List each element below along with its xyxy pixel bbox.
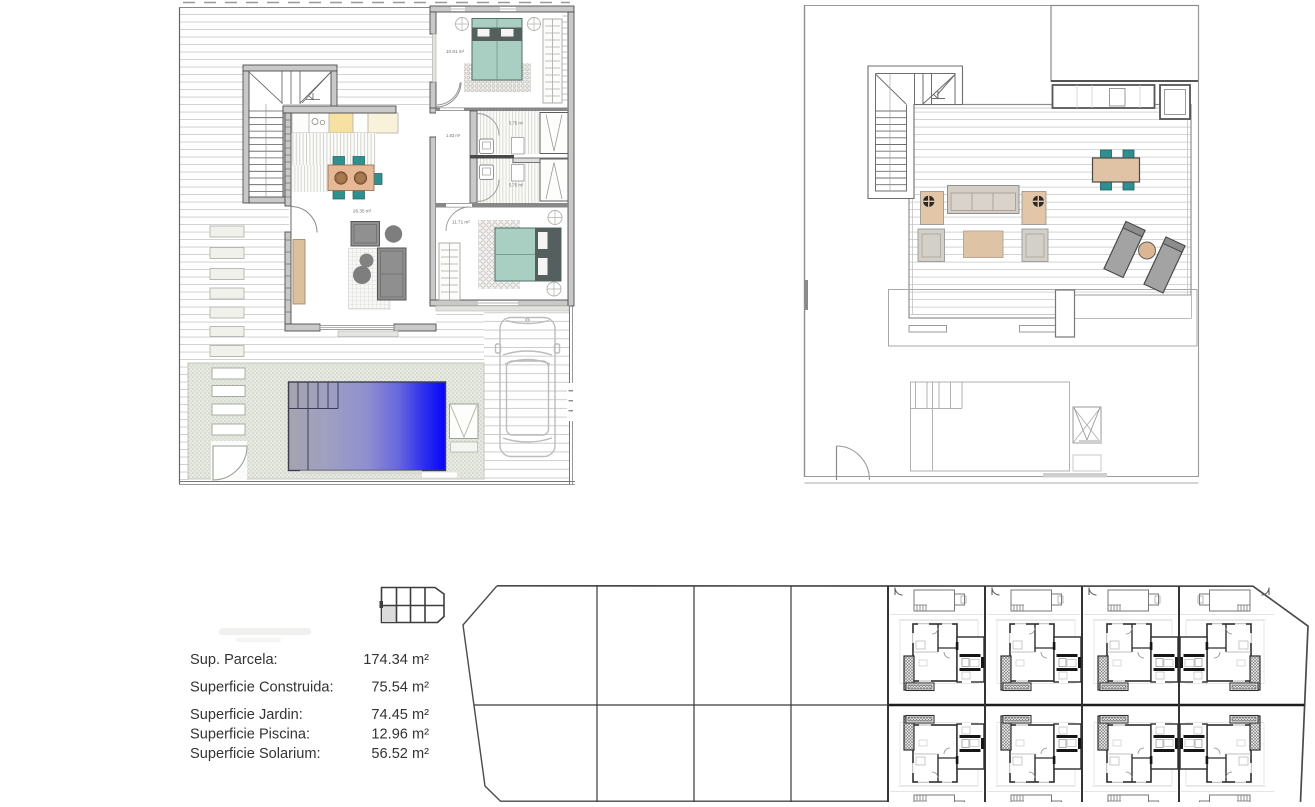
svg-text:Superficie Jardin:: Superficie Jardin: xyxy=(190,707,303,723)
svg-text:10.81 m²: 10.81 m² xyxy=(446,49,465,54)
svg-text:56.52 m²: 56.52 m² xyxy=(371,746,429,762)
svg-text:26.35 m²: 26.35 m² xyxy=(353,209,372,214)
svg-text:74.45 m²: 74.45 m² xyxy=(371,707,429,723)
svg-text:75.54 m²: 75.54 m² xyxy=(371,680,429,696)
svg-text:Superficie Construida:: Superficie Construida: xyxy=(190,680,334,696)
svg-text:1.83 m²: 1.83 m² xyxy=(446,133,461,138)
svg-text:174.34 m²: 174.34 m² xyxy=(363,652,429,668)
svg-text:5.75 m²: 5.75 m² xyxy=(509,121,524,126)
svg-text:5.75 m²: 5.75 m² xyxy=(509,183,524,188)
svg-text:12.96 m²: 12.96 m² xyxy=(371,727,429,743)
svg-text:Superficie Piscina:: Superficie Piscina: xyxy=(190,727,310,743)
svg-text:11.71 m²: 11.71 m² xyxy=(452,220,470,225)
svg-text:Superficie Solarium:: Superficie Solarium: xyxy=(190,746,321,762)
svg-text:Sup. Parcela:: Sup. Parcela: xyxy=(190,652,278,668)
